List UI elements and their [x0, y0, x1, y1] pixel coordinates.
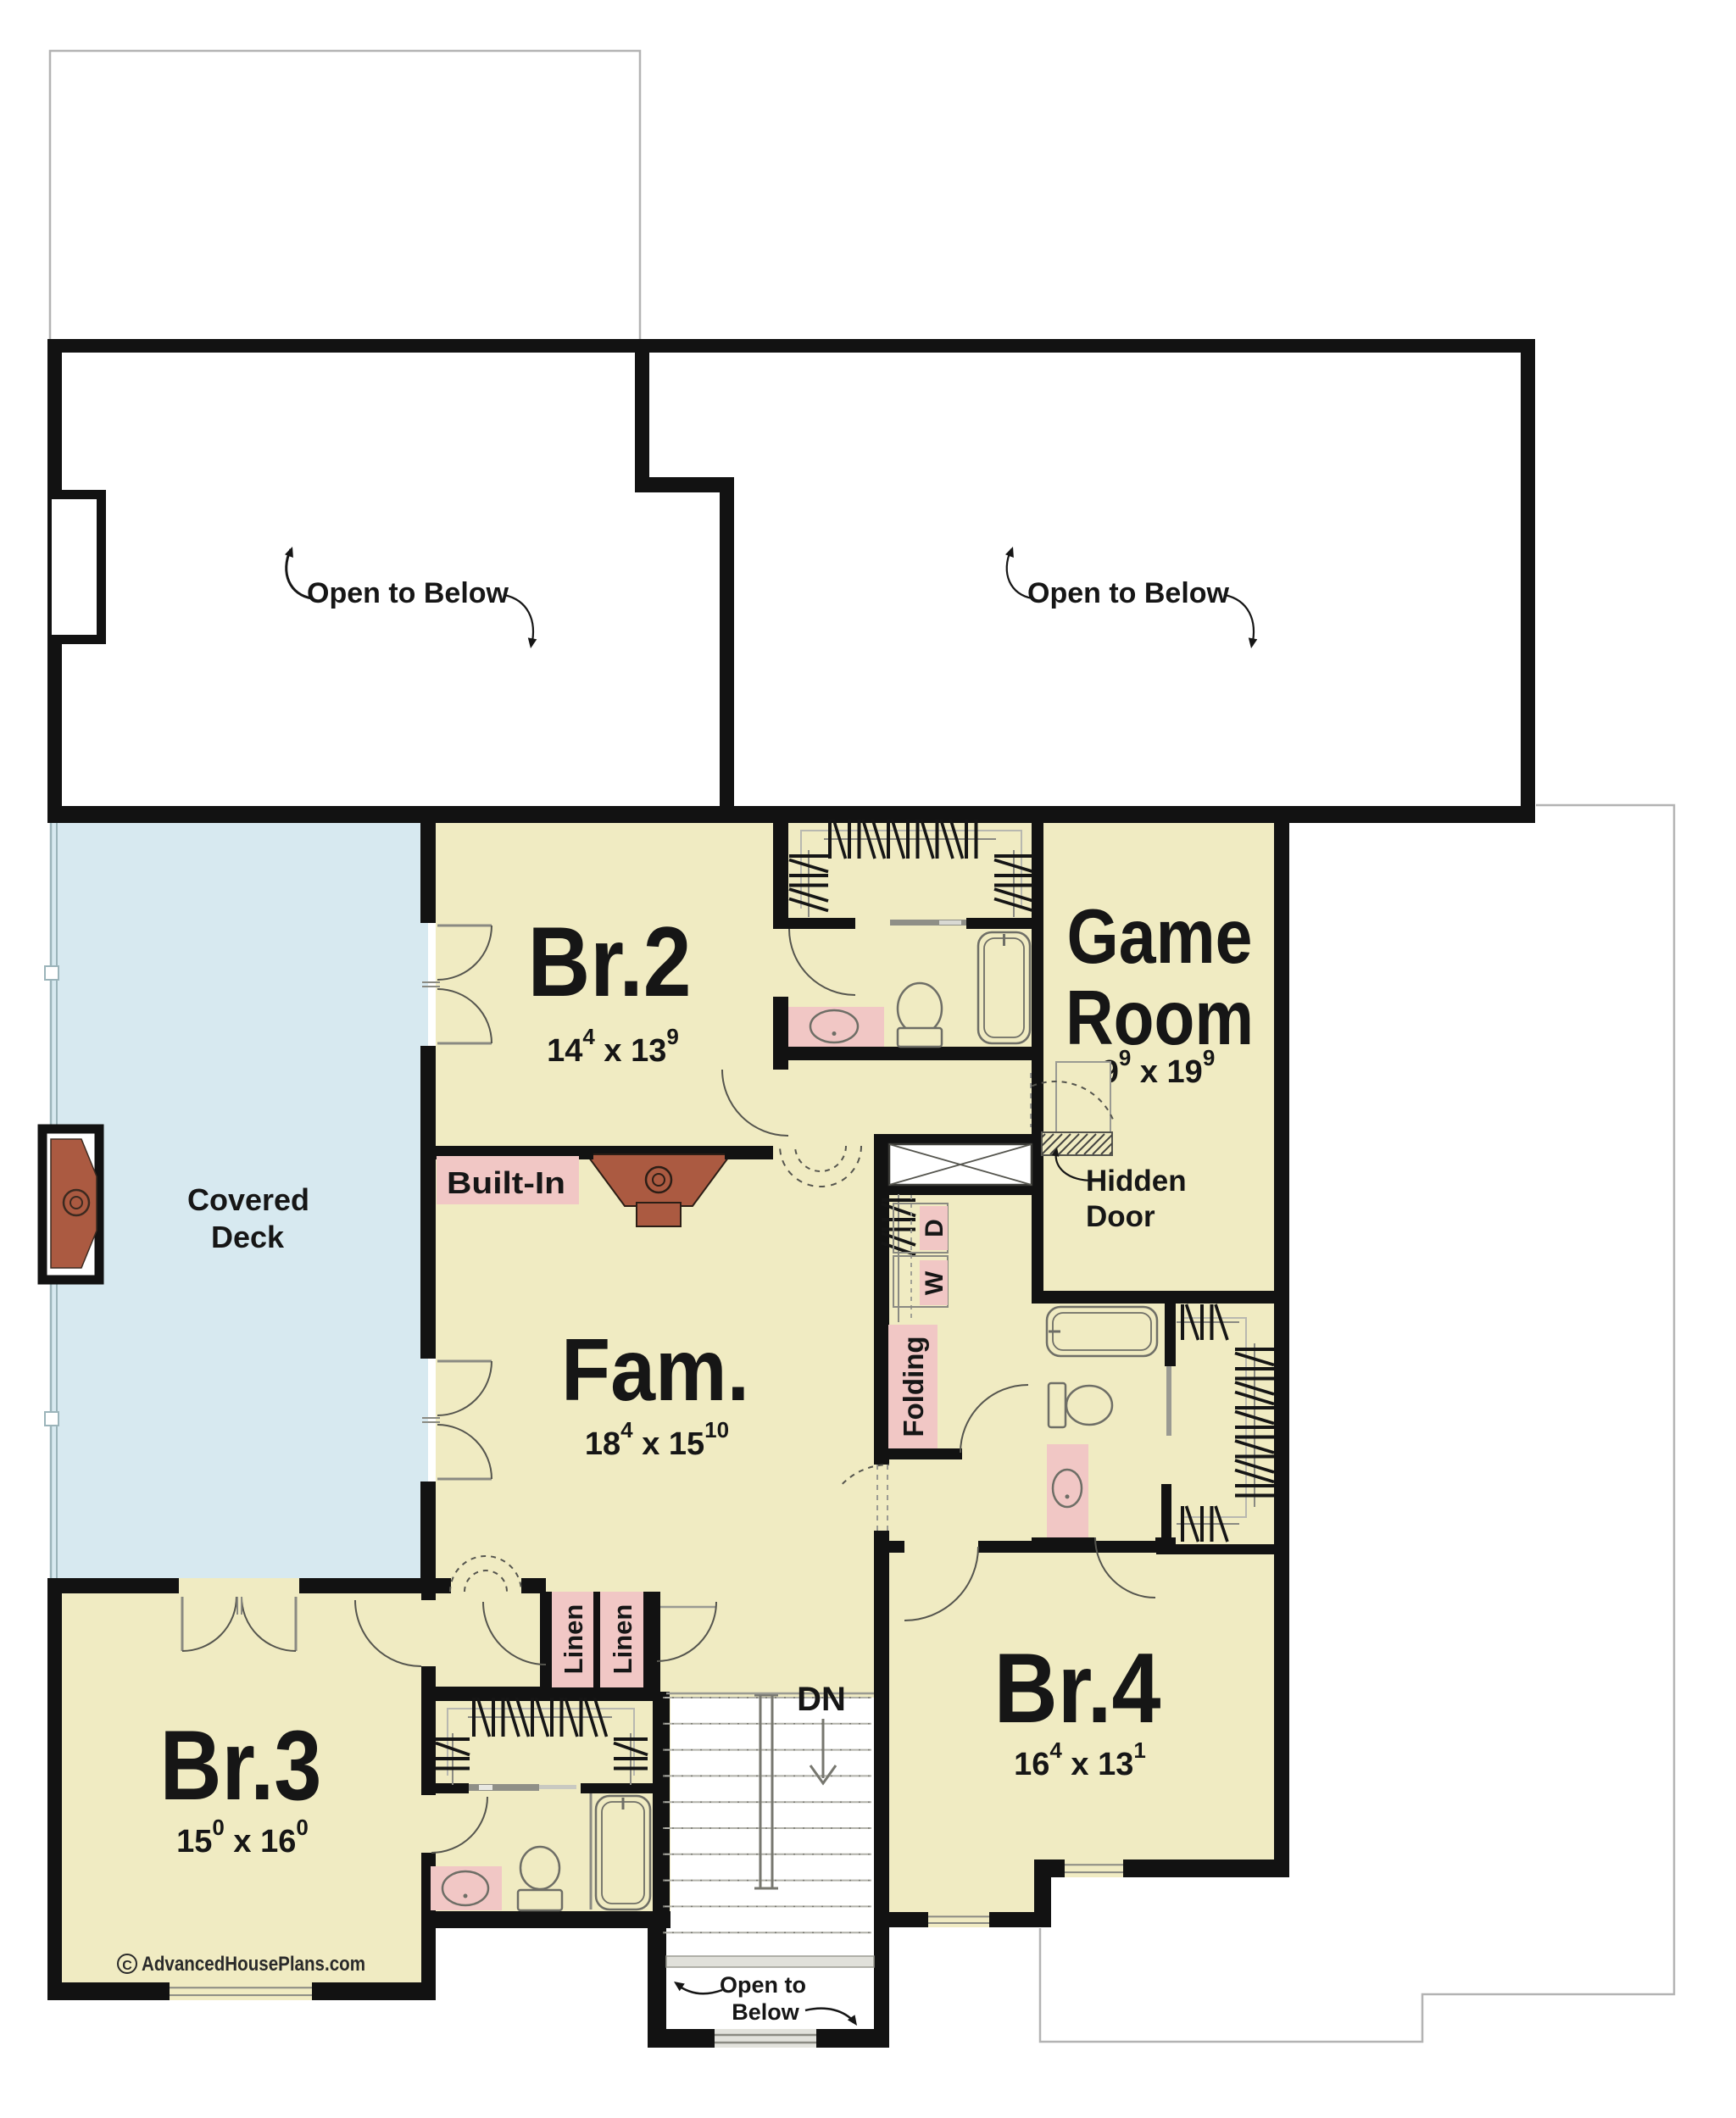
- svg-text:Open to: Open to: [720, 1972, 806, 1998]
- svg-text:AdvancedHousePlans.com: AdvancedHousePlans.com: [142, 1953, 365, 1976]
- svg-text:W: W: [921, 1270, 949, 1295]
- svg-text:Br.4: Br.4: [994, 1632, 1161, 1743]
- svg-text:Fam.: Fam.: [561, 1321, 749, 1420]
- svg-text:Deck: Deck: [211, 1220, 285, 1254]
- svg-text:Built-In: Built-In: [447, 1165, 565, 1200]
- svg-text:Br.2: Br.2: [528, 906, 692, 1017]
- svg-text:Br.3: Br.3: [160, 1709, 322, 1821]
- svg-text:Linen: Linen: [608, 1604, 637, 1675]
- svg-text:Door: Door: [1086, 1200, 1155, 1233]
- svg-text:Folding: Folding: [898, 1336, 929, 1437]
- svg-text:Below: Below: [732, 1999, 800, 2025]
- svg-text:Hidden: Hidden: [1086, 1165, 1187, 1198]
- svg-text:Open to Below: Open to Below: [1027, 577, 1230, 609]
- svg-text:DN: DN: [797, 1681, 846, 1718]
- svg-text:Game: Game: [1067, 894, 1253, 980]
- svg-text:C: C: [122, 1959, 132, 1973]
- svg-text:D: D: [921, 1219, 949, 1237]
- svg-text:Covered: Covered: [187, 1182, 309, 1217]
- svg-text:Open to Below: Open to Below: [307, 577, 509, 609]
- svg-text:Room: Room: [1066, 976, 1254, 1061]
- svg-text:Linen: Linen: [559, 1604, 588, 1675]
